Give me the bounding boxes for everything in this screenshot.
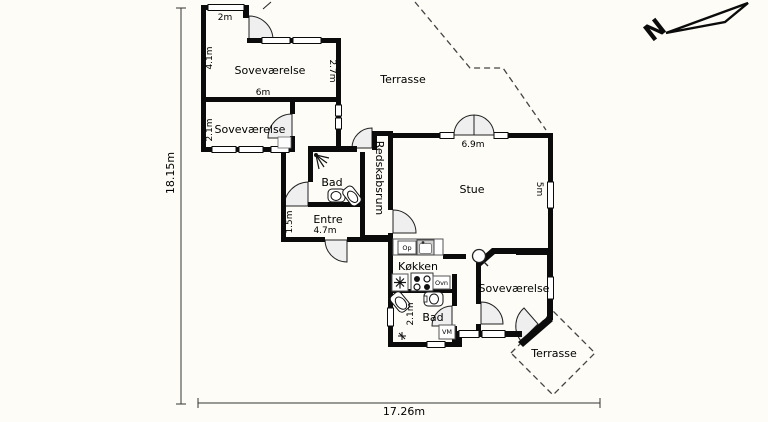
door-arc-utility-terrace: [352, 128, 372, 148]
door-arc-living: [393, 210, 416, 233]
dim-entry-left: 1.5m: [285, 210, 295, 233]
door-arc-bedroom-bottom: [481, 302, 503, 324]
dim-bedroom-top-left: 4.1m: [205, 46, 215, 69]
label-bedroom-bottom: Soveværelse: [479, 282, 550, 295]
dimension-labels: 2m 4.1m 2.7m 6m 2.1m 6.9m 5m 1.5m 4.7m 2…: [164, 13, 544, 418]
dim-bedroom-top-right: 2.7m: [327, 59, 337, 82]
terrace-upper-dashed-line: [415, 2, 546, 130]
door-arc-french-left: [454, 115, 474, 135]
north-letter: N: [638, 13, 671, 47]
toilet-icon: [328, 189, 345, 202]
floor-plan: N Soveværelse Soveværelse Soveværelse St…: [0, 0, 768, 422]
dim-total-width: 17.26m: [383, 405, 425, 418]
dim-bath-small-left: 2.1m: [406, 302, 416, 325]
dim-living-right: 5m: [534, 182, 544, 197]
label-utility: Redskabsrum: [373, 141, 386, 215]
label-terrace-lower: Terrasse: [530, 347, 577, 360]
freezer-star-icon: [392, 274, 408, 291]
door-arc-front-entrance: [325, 240, 347, 262]
label-terrace-upper: Terrasse: [379, 73, 426, 86]
north-arrow-icon: N: [638, 3, 748, 47]
label-bedroom-top: Soveværelse: [235, 64, 306, 77]
label-entry: Entre: [313, 213, 343, 226]
dim-entry-bottom: 4.7m: [313, 226, 336, 236]
shower-icon: [314, 153, 329, 169]
label-bedroom-mid: Soveværelse: [215, 123, 286, 136]
door-arc-bath-main: [284, 182, 308, 206]
dim-bedroom-top-bottom: 6m: [256, 88, 271, 98]
label-oven: Ovn: [435, 279, 448, 287]
label-washing-machine: VM: [442, 328, 452, 336]
dim-total-height: 18.15m: [164, 152, 177, 194]
wardrobe: [278, 137, 291, 148]
label-dishwasher: Op: [402, 244, 411, 252]
label-bath-small: Bad: [422, 311, 443, 324]
label-kitchen: Køkken: [398, 260, 438, 273]
label-living-room: Stue: [459, 183, 484, 196]
stove-hob-icon: [411, 273, 433, 291]
dim-bedroom-mid-left: 2.1m: [205, 118, 215, 141]
door-arc-alcove: [249, 16, 273, 40]
label-bath-main: Bad: [321, 176, 342, 189]
dim-alcove: 2m: [218, 13, 233, 23]
dim-living-top: 6.9m: [461, 140, 484, 150]
door-swing-tick: [263, 2, 271, 9]
door-arc-french-right: [474, 115, 494, 135]
floor-drain-icon: [398, 332, 406, 340]
toilet-small-icon: [424, 292, 443, 306]
kitchen-sink-icon: [417, 240, 434, 255]
